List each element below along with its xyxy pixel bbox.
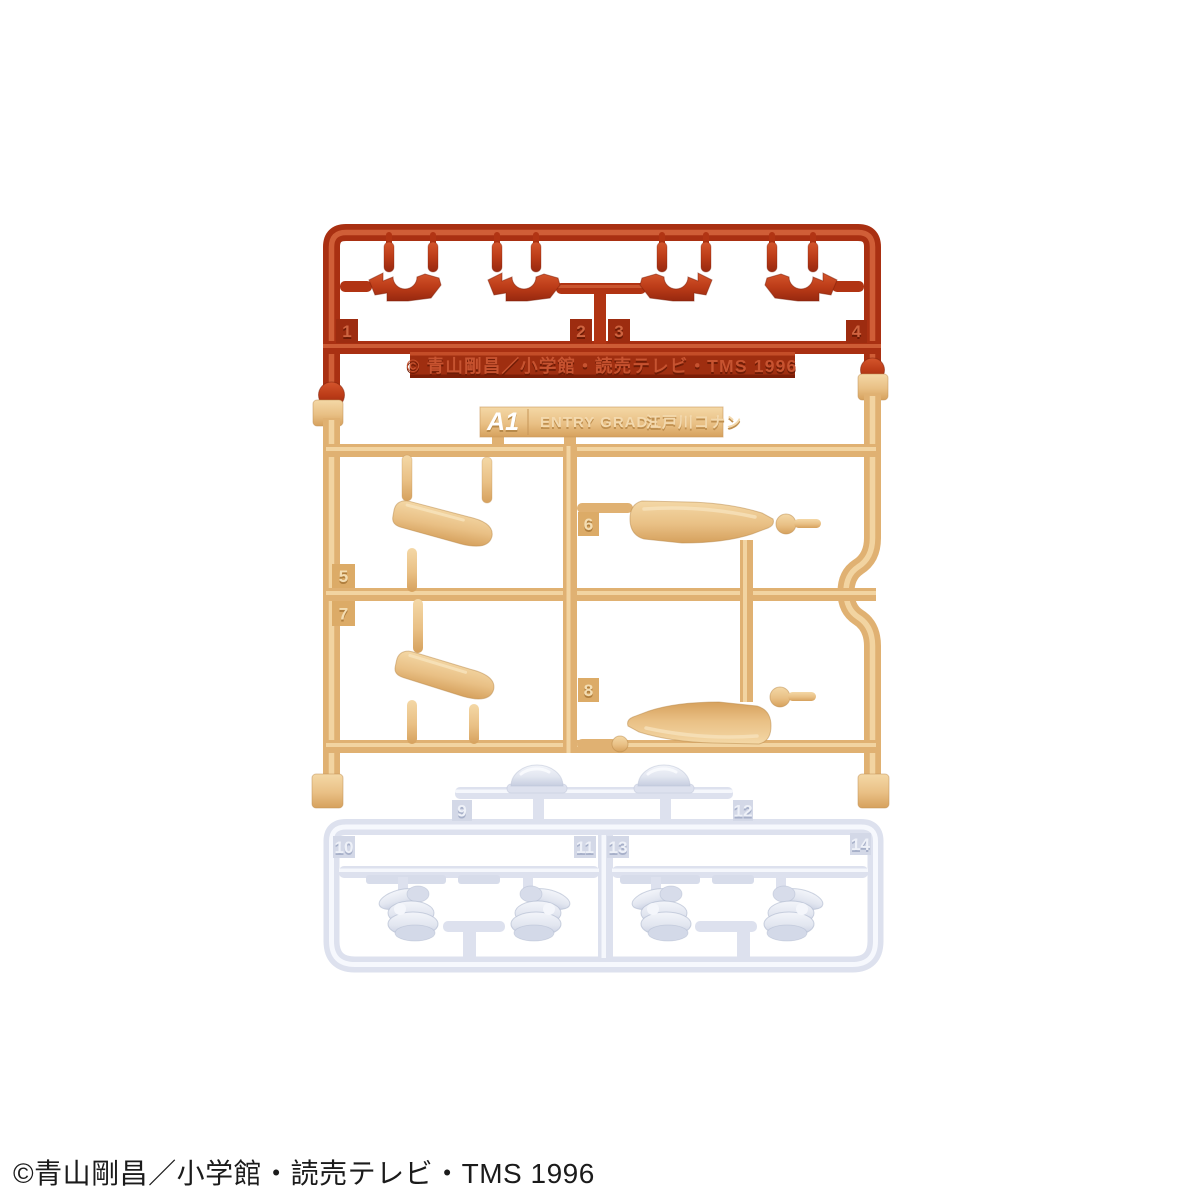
red-runner: 1 1 2 2 3 3 4 4 © 青山剛昌／小学館・読売テレビ・TMS 199… [319, 232, 885, 408]
part-fist-3 [630, 885, 691, 941]
runner-tag-code: A1 [486, 408, 519, 436]
part-fist-4 [764, 885, 825, 941]
tan-bottom-right-connector [858, 774, 889, 808]
part-number-tab-14: 14 14 [850, 833, 871, 856]
part-number-tab-9: 9 9 [452, 800, 472, 823]
red-runner-stub-left [340, 281, 372, 292]
part-number-tab-7: 7 7 [332, 601, 355, 626]
part-number-tab-12: 12 12 [733, 800, 753, 823]
part-4-shoe [765, 273, 837, 301]
part-number-tab-6: 6 6 [578, 512, 599, 536]
svg-text:9: 9 [457, 802, 466, 821]
molded-copyright-bar: © 青山剛昌／小学館・読売テレビ・TMS 1996 © 青山剛昌／小学館・読売テ… [407, 352, 798, 378]
part-fist-2 [511, 885, 572, 941]
white-runner: 9 9 10 10 11 11 12 12 13 13 14 14 [332, 765, 876, 965]
part-1-shoe [369, 273, 441, 301]
part-number-tab-13: 13 13 [607, 836, 629, 859]
part-number-tab-2: 2 2 [570, 319, 592, 343]
svg-text:2: 2 [576, 322, 585, 341]
part-number-tab-4: 4 4 [846, 320, 867, 343]
svg-text:10: 10 [335, 838, 354, 857]
part-3-shoe [640, 273, 712, 301]
runner-illustration: 1 1 2 2 3 3 4 4 © 青山剛昌／小学館・読売テレビ・TMS 199… [0, 0, 1200, 1200]
part-hair-dome-right [634, 765, 694, 793]
svg-text:11: 11 [576, 838, 594, 857]
part-fist-1 [377, 885, 438, 941]
svg-text:© 青山剛昌／小学館・読売テレビ・TMS 1996: © 青山剛昌／小学館・読売テレビ・TMS 1996 [407, 356, 798, 376]
svg-text:14: 14 [851, 835, 870, 854]
svg-text:12: 12 [734, 802, 753, 821]
part-hair-dome-left [507, 765, 567, 793]
part-number-tab-5: 5 5 [332, 564, 355, 588]
runner-tag-plate: A1 A1 ENTRY GRADE ENTRY GRADE 江戸川コナン 江戸川… [480, 407, 742, 446]
svg-text:4: 4 [852, 322, 862, 341]
product-photo-model-kit-runner: 1 1 2 2 3 3 4 4 © 青山剛昌／小学館・読売テレビ・TMS 199… [0, 0, 1200, 1200]
svg-text:8: 8 [584, 681, 593, 700]
part-number-tab-8: 8 8 [578, 678, 599, 702]
part-number-tab-1: 1 1 [336, 319, 358, 343]
svg-text:6: 6 [584, 515, 593, 534]
footer-copyright-text: ©青山剛昌／小学館・読売テレビ・TMS 1996 [13, 1152, 595, 1192]
tan-runner: A1 A1 ENTRY GRADE ENTRY GRADE 江戸川コナン 江戸川… [312, 374, 889, 808]
svg-text:3: 3 [614, 322, 623, 341]
runner-tag-grade: ENTRY GRADE [540, 414, 659, 431]
part-2-shoe [488, 273, 560, 301]
svg-text:1: 1 [342, 322, 351, 341]
svg-text:7: 7 [339, 605, 348, 624]
part-number-tab-10: 10 10 [333, 836, 355, 859]
svg-text:5: 5 [339, 567, 348, 586]
part-6-leg [577, 501, 821, 543]
svg-text:13: 13 [609, 838, 628, 857]
tan-peg [402, 455, 412, 501]
runner-tag-character: 江戸川コナン [646, 413, 742, 431]
part-5-leg [390, 499, 495, 549]
part-7-leg [392, 649, 498, 703]
red-t-runner-stem [594, 290, 606, 344]
red-runner-stub-right [832, 281, 864, 292]
tan-bottom-left-connector [312, 774, 343, 808]
part-number-tab-11: 11 11 [574, 836, 596, 859]
part-number-tab-3: 3 3 [608, 319, 630, 343]
